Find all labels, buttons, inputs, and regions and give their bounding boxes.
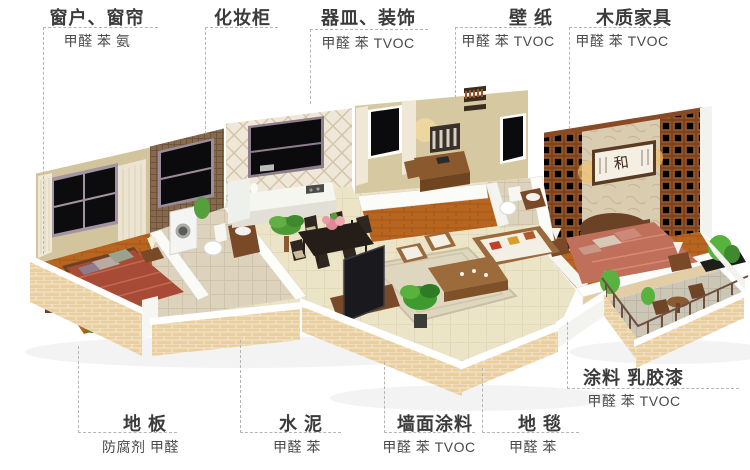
label-wood-furniture-pollutants: 甲醛 苯 TVOC (572, 31, 672, 51)
label-wallpaper-title: 壁 纸 (478, 4, 584, 30)
label-carpet-title: 地 毯 (491, 410, 589, 436)
label-cement-title: 水 泥 (251, 410, 351, 436)
kettle (250, 183, 258, 193)
pollution-sources-infographic: 和 (0, 0, 750, 470)
label-wood-furniture-title: 木质家具 (584, 4, 684, 30)
label-windows-curtains-title: 窗户、窗帘 (36, 4, 158, 30)
connector-windows-curtains (43, 27, 158, 254)
label-floor-pollutants: 防腐剂 甲醛 (88, 437, 193, 457)
label-cement-pollutants: 甲醛 苯 (247, 437, 347, 457)
label-wallpaper-pollutants: 甲醛 苯 TVOC (456, 31, 560, 51)
label-wall-paint-title: 墙面涂料 (386, 410, 484, 436)
plant (194, 197, 210, 219)
label-paint-latex-pollutants: 甲醛 苯 TVOC (578, 391, 690, 411)
label-dishes-decor-title: 器皿、装饰 (306, 4, 431, 30)
label-wall-paint-pollutants: 甲醛 苯 TVOC (377, 437, 481, 457)
label-carpet-pollutants: 甲醛 苯 (481, 437, 585, 457)
connector-vanity-cabinet (205, 27, 278, 134)
master-side-wall (700, 106, 712, 240)
label-dishes-decor-pollutants: 甲醛 苯 TVOC (312, 33, 424, 53)
label-paint-latex-title: 涂料 乳胶漆 (576, 364, 691, 390)
label-floor-title: 地 板 (95, 410, 195, 436)
svg-text:和: 和 (613, 154, 630, 173)
plant (600, 270, 620, 294)
carved-lattice-right (660, 108, 700, 238)
label-windows-curtains-pollutants: 甲醛 苯 氨 (42, 31, 152, 51)
dining-curtain-left (356, 106, 368, 186)
label-vanity-cabinet-title: 化妆柜 (205, 4, 280, 30)
